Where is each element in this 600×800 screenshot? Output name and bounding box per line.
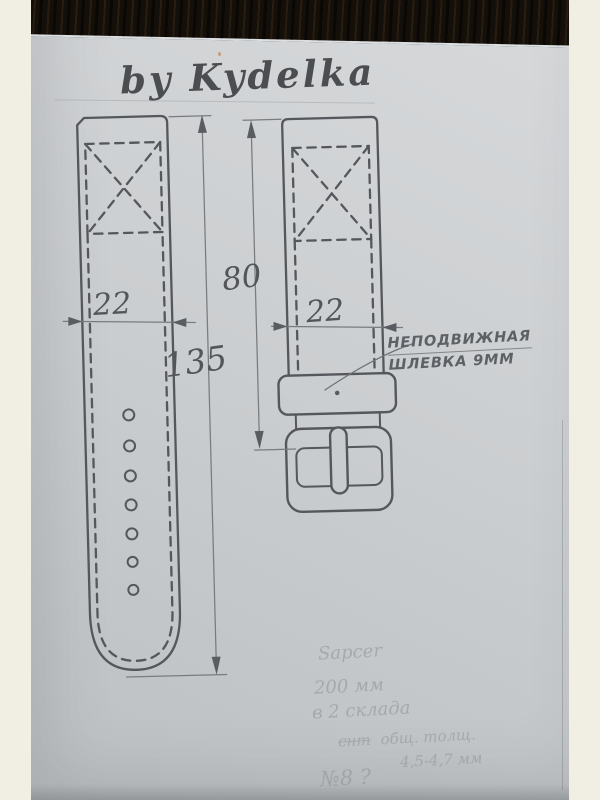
left-strap-width-label: 22 (92, 286, 132, 323)
strap-diagram-svg (0, 0, 600, 800)
left-strap-group (58, 115, 227, 679)
keeper-annotation: НЕПОДВИЖНАЯ ШЛЕВКА 9ММ (387, 326, 533, 375)
strap-hole (125, 499, 136, 510)
strap-hole (124, 440, 135, 451)
strap-hole (127, 557, 137, 567)
left-strap-cross-stitch (85, 142, 162, 234)
right-strap-cross-stitch (292, 146, 371, 241)
photo-of-strap-drawing: by Kydelka 22 135 80 22 НЕПОДВИЖНАЯ ШЛЕВ… (0, 0, 600, 800)
buckle-prong (330, 427, 348, 493)
right-strap-width-label: 22 (305, 293, 346, 331)
pencil-note: №8 ? (319, 765, 371, 792)
strap-hole (128, 585, 138, 595)
author-signature: by Kydelka (119, 50, 376, 103)
strap-hole (123, 409, 134, 420)
strap-hole (126, 528, 137, 539)
pencil-note: Sapcer (317, 640, 382, 664)
right-strap-length-label: 80 (220, 258, 264, 299)
leader-target-dot (335, 391, 340, 396)
pencil-note-struck-word: снт (338, 731, 371, 751)
pencil-note: 200 мм (313, 674, 384, 699)
strap-holes (123, 409, 139, 595)
strap-hole (125, 470, 136, 481)
